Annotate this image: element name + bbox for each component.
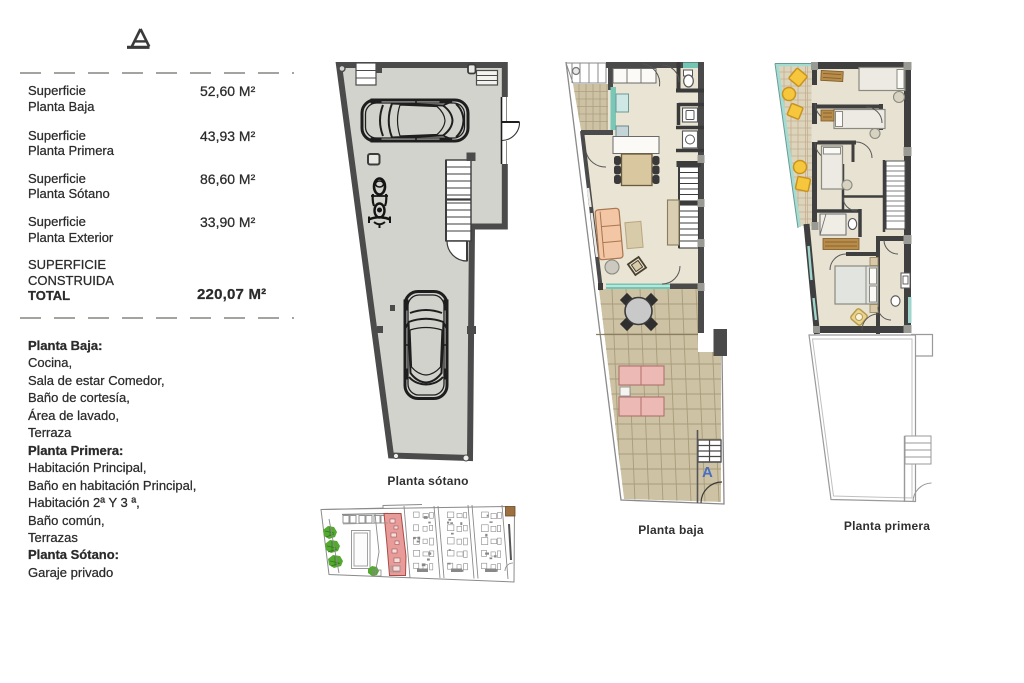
svg-text:A: A <box>702 464 713 481</box>
